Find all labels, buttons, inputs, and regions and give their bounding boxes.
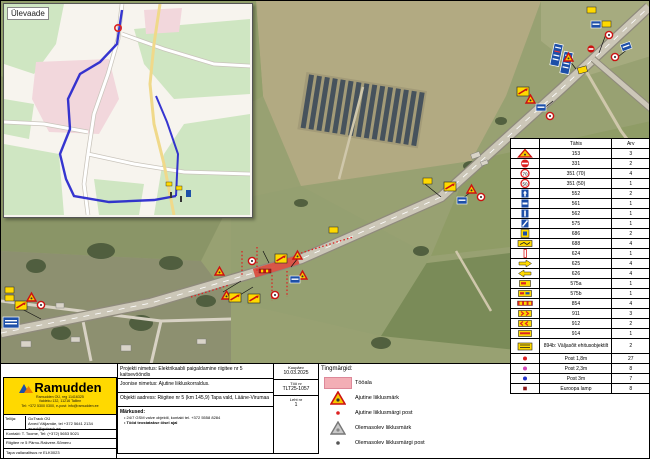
meta-sheet: Leht nr 1 xyxy=(274,396,318,412)
sign-table-row: 6254 xyxy=(511,259,650,269)
sign-table-row: 575a1 xyxy=(511,279,650,289)
header-count-col: Arv xyxy=(612,139,650,149)
sign-table-row: 3312 xyxy=(511,159,650,169)
company-cell: Ramudden Ramudden OÜ, reg 11416325 Valde… xyxy=(3,377,117,459)
contact-row: Kontakt: T. Toome, Tel: (+372) 5653 5021 xyxy=(4,430,117,439)
yellow-plate-icon xyxy=(5,287,14,293)
sign-quantity-table: Tähis Arv 1533331270351 (70)450351 (50)1… xyxy=(510,138,650,394)
chevron-plate3-icon xyxy=(512,329,538,338)
sign-table-row: 50351 (50)1 xyxy=(511,179,650,189)
sign-code: 854 xyxy=(540,299,612,309)
sign-count: 4 xyxy=(612,239,650,249)
speed-limit-icon xyxy=(611,53,618,60)
project-name-line: Projekti nimetus: Elektrikaabli paigalda… xyxy=(118,364,273,379)
sign-code: 331 xyxy=(540,159,612,169)
work-zone-swatch-icon xyxy=(324,377,352,389)
sign-count: 2 xyxy=(612,159,650,169)
legend-item: Ajutine liiklusmärk xyxy=(321,390,531,405)
dot-red-icon xyxy=(512,354,538,363)
sign-table-row: 70351 (70)4 xyxy=(511,169,650,179)
drawing-name-line: Joonise nimetus: Ajutine liikluskorraldu… xyxy=(118,379,273,393)
sign-code: 575a xyxy=(540,279,612,289)
yellow-board-icon xyxy=(517,87,529,96)
sign-table-row: Euroopa lamp8 xyxy=(511,384,650,394)
yellow-board-icon xyxy=(15,301,27,310)
legend-item-label: Olemasolev liiklusmärgi post xyxy=(355,440,425,446)
speed-limit-icon xyxy=(546,112,553,119)
temporary-sign-triangle-icon xyxy=(330,391,346,405)
sign-count: 4 xyxy=(612,169,650,179)
exit-plate-icon xyxy=(512,342,538,351)
yellow-plate-icon xyxy=(587,7,596,13)
client-label: Tellija: xyxy=(4,416,26,429)
note-2: • Tööd teostatakse öisel ajal xyxy=(120,420,271,425)
sign-count: 27 xyxy=(612,354,650,364)
sign-count: 4 xyxy=(612,299,650,309)
sign-count: 8 xyxy=(612,384,650,394)
blue-info3-icon xyxy=(512,209,538,218)
sign-count: 8 xyxy=(612,364,650,374)
sign-code: 575b xyxy=(540,289,612,299)
meta-date-value: 10.03.2025 xyxy=(274,370,318,376)
speed-70-icon: 70 xyxy=(512,169,538,178)
dot-blue-icon xyxy=(512,374,538,383)
legend-panel: Tingmärgid: TööalaAjutine liiklusmärkAju… xyxy=(321,366,531,450)
sign-code: 624 xyxy=(540,249,612,259)
sign-count: 2 xyxy=(612,339,650,354)
sign-code: Post 2,3m xyxy=(540,364,612,374)
meta-date: Kuupäev 10.03.2025 xyxy=(274,364,318,380)
sign-code: 625 xyxy=(540,259,612,269)
sign-table-header: Tähis Arv xyxy=(511,139,650,149)
sign-table-row: Post 2,3m8 xyxy=(511,364,650,374)
company-address-3: Tel: +372 5300 0300, e-post: info@ramudd… xyxy=(4,404,116,408)
post-left-icon xyxy=(512,249,538,258)
sign-code: Euroopa lamp xyxy=(540,384,612,394)
sign-code: 686 xyxy=(540,229,612,239)
sign-code: 912 xyxy=(540,319,612,329)
sign-code: 914 xyxy=(540,329,612,339)
permit-row: Tapa vallavalitsus nr ELK0023 xyxy=(4,449,117,455)
sign-count: 4 xyxy=(612,259,650,269)
ramudden-logo-box: Ramudden Ramudden OÜ, reg 11416325 Valde… xyxy=(3,377,117,415)
speed-limit-icon xyxy=(248,257,255,264)
warn-triangle-icon xyxy=(512,149,538,158)
sign-code: 153 xyxy=(540,149,612,159)
meta-sheet-value: 1 xyxy=(274,402,318,408)
sign-code: Post 3m xyxy=(540,374,612,384)
sign-count: 1 xyxy=(612,249,650,259)
blue-sign-icon xyxy=(591,21,601,28)
sign-code: 552 xyxy=(540,189,612,199)
inset-label: Ülevaade xyxy=(7,7,49,20)
client-row: Tellija: GoTrack OÜ Arved Väljamäe, tel … xyxy=(4,416,117,430)
legend-item: Olemasolev liiklusmärgi post xyxy=(321,435,531,450)
sign-count: 3 xyxy=(612,149,650,159)
sign-table-row: 5611 xyxy=(511,199,650,209)
header-code-col: Tähis xyxy=(540,139,612,149)
sign-table-row: 5751 xyxy=(511,219,650,229)
sign-table-row: Post 1,8m27 xyxy=(511,354,650,364)
sign-table-row: 9113 xyxy=(511,309,650,319)
inset-map-canvas xyxy=(4,4,250,215)
sign-code: 351 (50) xyxy=(540,179,612,189)
meta-cell: Kuupäev 10.03.2025 Töö nr TLT25-1057 Leh… xyxy=(273,363,319,454)
speed-limit-icon xyxy=(271,291,278,298)
sign-count: 1 xyxy=(612,279,650,289)
sign-code: Post 1,8m xyxy=(540,354,612,364)
sign-table-row: 9122 xyxy=(511,319,650,329)
meta-job: Töö nr TLT25-1057 xyxy=(274,380,318,396)
blue-sign-icon xyxy=(536,104,546,111)
ramudden-logo-icon xyxy=(18,382,34,394)
barrier-icon xyxy=(259,269,271,273)
yellow-plate-icon xyxy=(512,279,538,288)
sign-count: 1 xyxy=(612,179,650,189)
speed-limit-icon xyxy=(37,301,44,308)
ta-plan-sheet: Ülevaade xyxy=(0,0,650,459)
no-entry-icon xyxy=(587,45,594,52)
road-row: Riigitee nr 5 Pärnu-Rakvere-Sõmeru xyxy=(4,439,117,449)
overview-inset-map: Ülevaade xyxy=(3,3,253,218)
sign-code: 351 (70) xyxy=(540,169,612,179)
svg-text:50: 50 xyxy=(523,181,529,186)
sign-code: 688 xyxy=(540,239,612,249)
company-name: Ramudden xyxy=(34,380,101,395)
chevron-plate-icon xyxy=(512,309,538,318)
legend-item: Olemasolev liiklusmärk xyxy=(321,420,531,435)
speed-limit-icon xyxy=(477,193,484,200)
sign-table-row: 5621 xyxy=(511,209,650,219)
blue-info4-icon xyxy=(512,219,538,228)
yellow-board-icon xyxy=(444,182,456,191)
legend-title: Tingmärgid: xyxy=(321,366,531,372)
yellow-plate2-icon xyxy=(512,289,538,298)
yellow-board-icon xyxy=(248,294,260,303)
sign-count: 1 xyxy=(612,289,650,299)
no-entry-icon xyxy=(512,159,538,168)
legend-item: Ajutine liiklusmärgi post xyxy=(321,405,531,420)
blue-sign-icon xyxy=(290,276,300,283)
sign-count: 2 xyxy=(612,229,650,239)
sign-count: 1 xyxy=(612,329,650,339)
blue-info-icon xyxy=(512,189,538,198)
sign-code: 911 xyxy=(540,309,612,319)
chevron-plate2-icon xyxy=(512,319,538,328)
speed-50-icon: 50 xyxy=(512,179,538,188)
sign-count: 2 xyxy=(612,319,650,329)
object-address-line: Objekti aadress: Riigitee nr 5 (km 145,9… xyxy=(118,393,273,407)
dot-magenta-icon xyxy=(512,364,538,373)
yellow-plate-icon xyxy=(423,178,432,184)
barrier-icon xyxy=(512,299,538,308)
sign-code: 575 xyxy=(540,219,612,229)
temporary-post-dot-icon xyxy=(334,409,342,417)
header-icon-col xyxy=(511,139,540,149)
legend-item-label: Tööala xyxy=(355,380,372,386)
arrow-left-icon xyxy=(512,269,538,278)
blue-board-line xyxy=(5,320,17,321)
legend-item-label: Ajutine liiklusmärk xyxy=(355,395,399,401)
description-cell: Projekti nimetus: Elektrikaabli paigalda… xyxy=(117,363,274,454)
blue-board-large-icon xyxy=(3,317,19,328)
sign-table-row: 575b1 xyxy=(511,289,650,299)
sign-table-row: 9141 xyxy=(511,329,650,339)
sign-count: 7 xyxy=(612,374,650,384)
sign-count: 4 xyxy=(612,269,650,279)
dot-darkred-icon xyxy=(512,384,538,393)
legend-item: Tööala xyxy=(321,375,531,390)
sign-table-row: Post 3m7 xyxy=(511,374,650,384)
yellow-plate-icon xyxy=(602,21,611,27)
yellow-board-icon xyxy=(275,254,287,263)
sign-table-row: 6884 xyxy=(511,239,650,249)
svg-text:70: 70 xyxy=(523,171,529,176)
blue-board-line xyxy=(5,323,17,324)
sign-table-row: 8544 xyxy=(511,299,650,309)
yellow-blue-icon xyxy=(512,229,538,238)
sign-table-row: 894b: Väljasõit ehitusobjektilt2 xyxy=(511,339,650,354)
blue-info2-icon xyxy=(512,199,538,208)
yellow-board-icon xyxy=(229,293,241,302)
sign-count: 1 xyxy=(612,209,650,219)
yellow-wide-icon xyxy=(512,239,538,248)
sign-table-row: 6241 xyxy=(511,249,650,259)
legend-item-label: Olemasolev liiklusmärk xyxy=(355,425,411,431)
blue-sign-icon xyxy=(457,197,467,204)
sign-count: 2 xyxy=(612,189,650,199)
sign-table-row: 6862 xyxy=(511,229,650,239)
arrow-right-icon xyxy=(512,259,538,268)
meta-job-value: TLT25-1057 xyxy=(274,386,318,392)
existing-sign-triangle-icon xyxy=(330,421,346,435)
speed-limit-icon xyxy=(605,31,612,38)
sign-code: 561 xyxy=(540,199,612,209)
sign-code: 626 xyxy=(540,269,612,279)
sign-code: 562 xyxy=(540,209,612,219)
sign-count: 1 xyxy=(612,219,650,229)
sign-code: 894b: Väljasõit ehitusobjektilt xyxy=(540,339,612,354)
existing-post-dot-icon xyxy=(334,439,342,447)
sign-table-row: 5522 xyxy=(511,189,650,199)
sign-table-row: 6264 xyxy=(511,269,650,279)
yellow-plate-icon xyxy=(329,227,338,233)
sign-table-row: 1533 xyxy=(511,149,650,159)
yellow-plate-icon xyxy=(5,295,14,301)
sign-count: 1 xyxy=(612,199,650,209)
legend-item-label: Ajutine liiklusmärgi post xyxy=(355,410,412,416)
sign-count: 3 xyxy=(612,309,650,319)
